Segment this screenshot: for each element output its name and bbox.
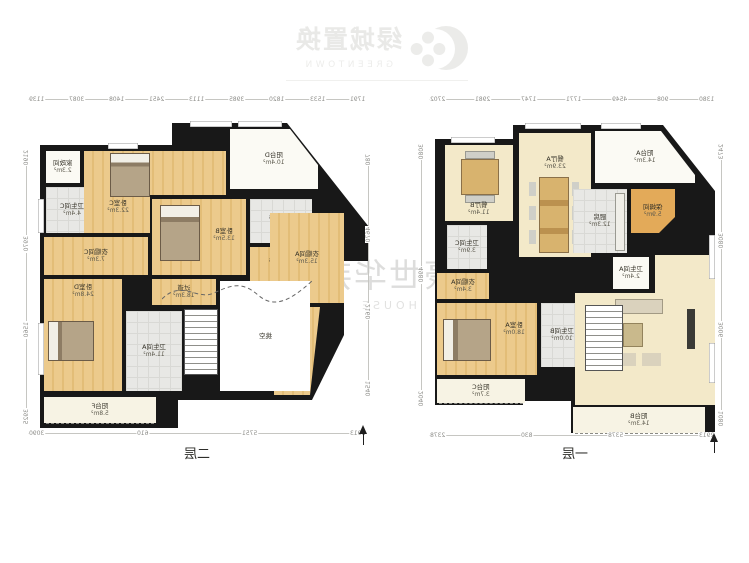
room-area: 23.9m²: [539, 163, 571, 171]
room-area: 12.3m²: [589, 221, 611, 229]
room-name: 阳台B: [628, 412, 650, 420]
dimension-row-top: 113930871408245111133985182015331791: [28, 95, 366, 104]
dimension-value: 3985: [228, 96, 245, 103]
dimension-value: 2451: [148, 96, 165, 103]
room-name: 衣帽间A: [451, 278, 475, 286]
long-dining-table-icon: [539, 177, 569, 253]
room-name: 阳台A: [634, 149, 656, 157]
dimension-value: 3925: [23, 408, 30, 425]
room-name: 家政间: [53, 159, 73, 167]
room-balcony-a: 阳台A14.3m²: [595, 131, 695, 183]
dimension-value: 610: [136, 430, 149, 437]
room-name: 卫生间C: [60, 202, 84, 210]
coffee-table-icon: [623, 323, 643, 347]
bed-icon: [48, 321, 94, 361]
dimension-value: 1113: [188, 96, 205, 103]
dimension-value: 4670: [365, 226, 372, 243]
room-name: 厨房: [589, 213, 611, 221]
room-area: 5.8m²: [91, 410, 109, 418]
dimension-value: 1771: [565, 96, 582, 103]
bed-icon: [443, 319, 491, 361]
room-name: 阳台D: [263, 151, 285, 159]
room-area: 2.4m²: [619, 273, 643, 281]
clover-moon-icon: [416, 23, 468, 75]
room-area: 2.3m²: [53, 167, 73, 175]
room-area: 4.4m²: [60, 210, 84, 218]
room-name: 卧室C: [90, 199, 146, 207]
room-area: 3.7m²: [472, 391, 490, 399]
balcony-dashed-line: [439, 399, 523, 404]
room-closet-a1: 衣帽间A3.4m²: [437, 273, 489, 299]
room-name: 衣帽间A: [295, 250, 319, 258]
room-name: 卧室B: [204, 227, 244, 235]
room-area: 5.9m²: [643, 211, 663, 219]
dimension-value: 908: [656, 96, 669, 103]
room-area: 7.3m²: [84, 256, 108, 264]
room-name: 卧室D: [60, 283, 106, 291]
balcony-dashed-line: [46, 419, 154, 424]
dimension-value: 1791: [349, 96, 366, 103]
dimension-col-left: 308049802040: [417, 143, 425, 407]
window-icon: [709, 343, 715, 383]
dimension-value: 4980: [418, 266, 425, 283]
window-icon: [108, 143, 138, 149]
room-name: 餐厅A: [539, 155, 571, 163]
room-area: 11.4m²: [142, 351, 166, 359]
window-icon: [190, 121, 232, 127]
floorplan-page: 绿城置换 GREENTOWN 豪世华邦 HOUSE 家政间2.3m² 卫生间C4…: [0, 0, 749, 563]
room-area: 3.9m²: [455, 247, 479, 255]
dimension-value: 830: [520, 432, 533, 439]
kitchen-counter-icon: [615, 193, 625, 251]
room-area: 22.3m²: [90, 207, 146, 215]
room-area: 11.4m²: [468, 209, 490, 217]
dimension-value: 2040: [418, 390, 425, 407]
armchair-icon: [617, 353, 661, 366]
dimension-col-right: 2473308030061080: [717, 143, 725, 427]
window-icon: [451, 137, 495, 143]
dimension-value: 1380: [698, 96, 715, 103]
dimension-value: 4549: [611, 96, 628, 103]
dimension-value: 1408: [108, 96, 125, 103]
north-arrow-icon: [358, 425, 368, 445]
dimension-value: 1080: [718, 410, 725, 427]
room-area: 15.3m²: [295, 258, 319, 266]
window-icon: [601, 123, 641, 129]
room-area: 3.4m²: [451, 286, 475, 294]
dimension-value: 2378: [429, 432, 446, 439]
window-icon: [709, 235, 715, 279]
dimension-value: 1747: [520, 96, 537, 103]
dimension-row-top: 270229811747177145499081380: [429, 95, 715, 104]
dimension-value: 2702: [429, 96, 446, 103]
room-name: 衣帽间C: [84, 248, 108, 256]
room-name: 卧室A: [495, 321, 533, 329]
room-name: 卫生间A: [142, 343, 166, 351]
dimension-value: 3080: [718, 232, 725, 249]
dimension-value: 1540: [365, 380, 372, 397]
dimension-col-right: 780467021601540: [364, 153, 372, 397]
dimension-value: 3090: [28, 430, 45, 437]
staircase-icon: [585, 305, 623, 371]
dimension-value: 2160: [365, 303, 372, 320]
greentown-logo: 绿城置换 GREENTOWN: [286, 20, 468, 78]
room-housekeeping: 家政间2.3m²: [46, 151, 80, 183]
room-name: 挑空: [259, 332, 272, 340]
room-bath-a2: 卫生间A11.4m²: [126, 311, 182, 391]
room-bedroom-d: 卧室D24.8m²: [44, 279, 122, 391]
logo-text-cn: 绿城置换: [294, 27, 402, 52]
dimension-row-bottom: 237883053782913: [429, 431, 715, 440]
room-balcony-d: 阳台D10.4m²: [230, 129, 318, 189]
room-closet-c: 衣帽间C7.3m²: [44, 237, 148, 275]
room-name: 阳台F: [91, 402, 109, 410]
window-icon: [238, 121, 282, 127]
plan-title-first-floor: 一层: [425, 443, 725, 462]
plan-title-second-floor: 二层: [22, 443, 372, 462]
dimension-value: 2473: [718, 143, 725, 160]
room-name: 卫生间A: [619, 265, 643, 273]
room-name: 阳台C: [472, 383, 490, 391]
dimension-col-left: 2190397015603925: [22, 149, 30, 425]
dimension-value: 780: [365, 153, 372, 166]
dimension-value: 3006: [718, 321, 725, 338]
dimension-value: 5378: [607, 432, 624, 439]
room-area: 18.0m²: [495, 329, 533, 337]
dimension-row-bottom: 309061057512913: [28, 429, 366, 438]
dimension-value: 1820: [268, 96, 285, 103]
dimension-value: 2190: [23, 149, 30, 166]
dimension-value: 1139: [28, 96, 45, 103]
dimension-value: 5751: [241, 430, 258, 437]
logo-divider: [286, 80, 468, 81]
window-icon: [38, 199, 44, 233]
room-kitchen: 厨房12.3m²: [573, 189, 627, 253]
bed-icon: [160, 205, 200, 261]
room-bedroom-a: 卧室A18.0m²: [437, 303, 537, 375]
dimension-value: 3087: [68, 96, 85, 103]
floor-plan-second: 家政间2.3m² 卫生间C4.4m² 衣帽间C7.3m² 卧室C22.3m² 阳…: [22, 95, 372, 470]
floor-plan-first: 餐厅B11.4m² 餐厅A23.9m² 厨房12.3m² 保姆间5.9m² 阳台…: [425, 95, 725, 470]
room-area: 13.5m²: [204, 235, 244, 243]
room-dining-b: 餐厅B11.4m²: [445, 145, 513, 221]
window-icon: [525, 123, 581, 129]
dimension-value: 1560: [23, 321, 30, 338]
room-bath-a1: 卫生间A2.4m²: [613, 257, 649, 289]
tv-cabinet-icon: [687, 309, 695, 349]
room-area: 14.3m²: [628, 420, 650, 428]
dimension-value: 3080: [418, 143, 425, 160]
staircase-icon: [184, 309, 218, 375]
dimension-value: 3970: [23, 235, 30, 252]
window-icon: [38, 323, 44, 375]
room-name: 卫生间B: [550, 327, 574, 335]
room-name: 卫生间C: [455, 239, 479, 247]
dining-table-icon: [461, 159, 499, 195]
room-area: 24.8m²: [60, 291, 106, 299]
bed-icon: [110, 153, 150, 197]
room-name: 保姆间: [643, 203, 663, 211]
room-area: 10.4m²: [263, 159, 285, 167]
room-bedroom-b: 卧室B13.5m²: [152, 199, 246, 275]
dimension-value: 1533: [309, 96, 326, 103]
void-boundary-line: [162, 271, 312, 307]
dimension-value: 2981: [474, 96, 491, 103]
logo-text-en: GREENTOWN: [302, 60, 393, 70]
room-area: 14.3m²: [634, 157, 656, 165]
logo-text: 绿城置换 GREENTOWN: [286, 27, 410, 71]
room-bath-c1: 卫生间C3.9m²: [447, 225, 487, 269]
room-area: 10.0m²: [550, 335, 574, 343]
